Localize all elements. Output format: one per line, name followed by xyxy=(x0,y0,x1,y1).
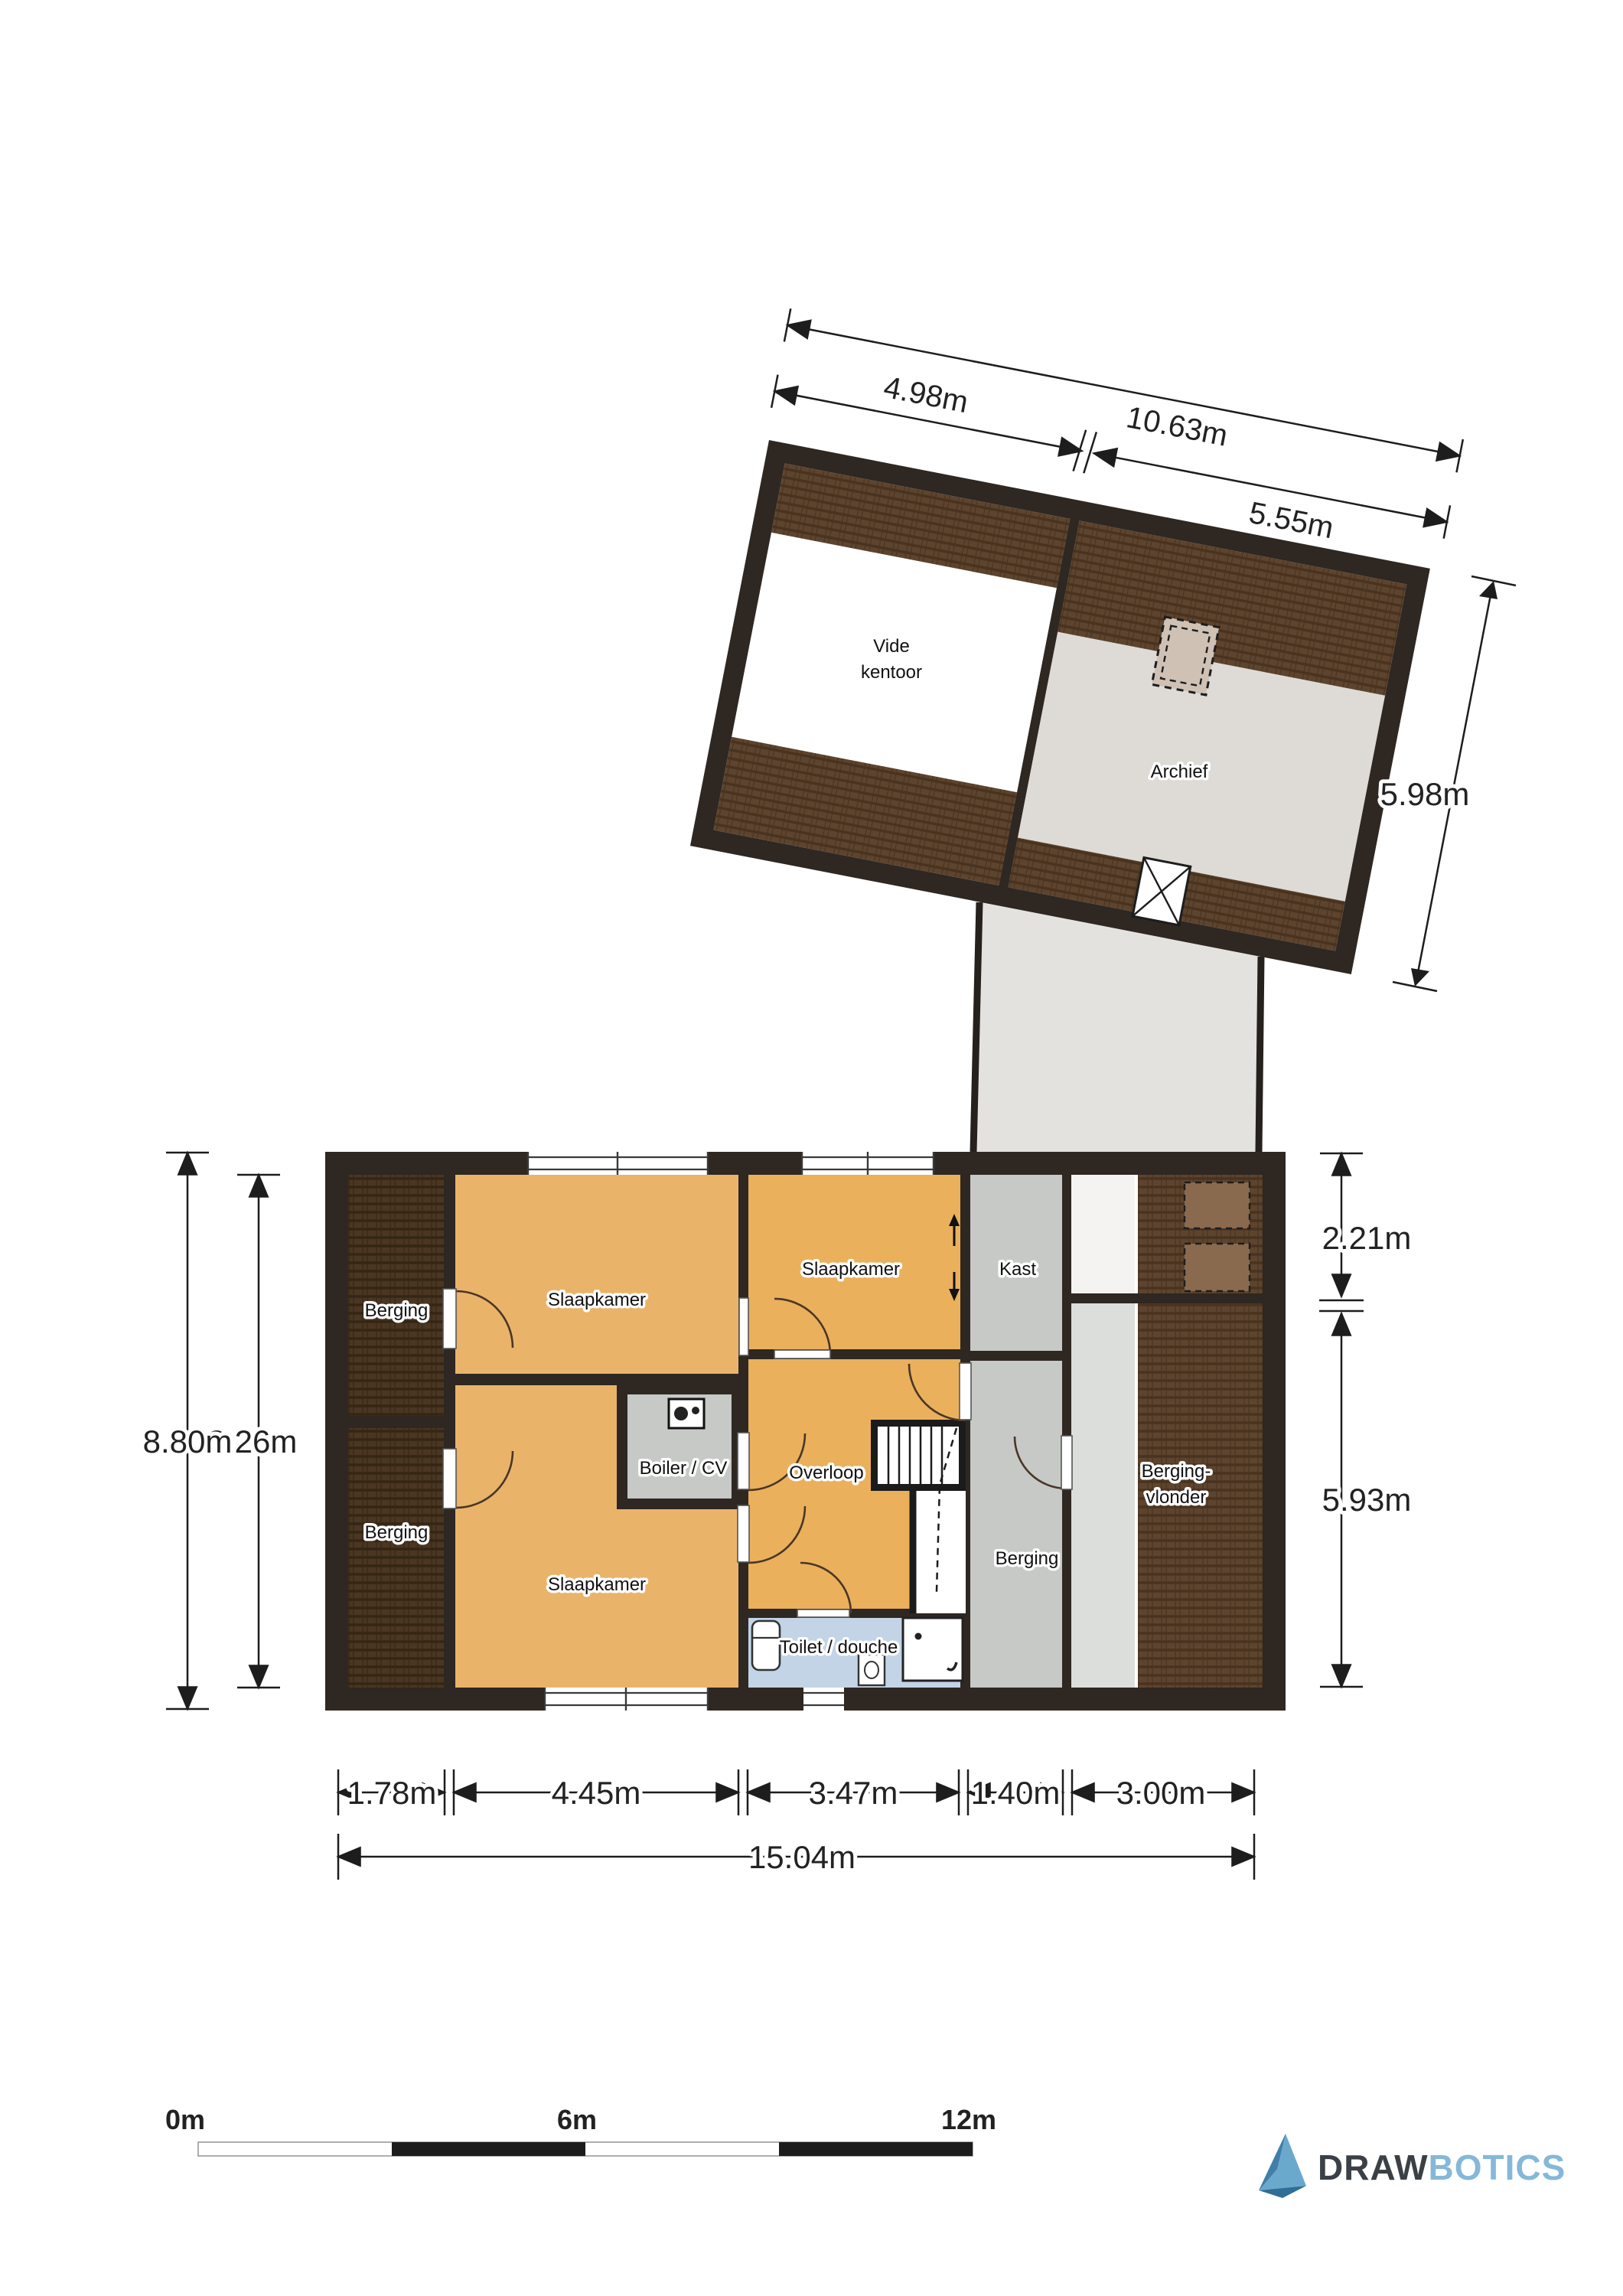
skylight-box xyxy=(1133,858,1191,925)
label-berging-vlonder-line1: Berging- xyxy=(1142,1461,1211,1482)
dim-w-berging: 1.78m xyxy=(347,1775,437,1811)
label-kast: Kast xyxy=(999,1259,1036,1280)
upper-unit: 10.63m 4.98m 5.55m xyxy=(686,308,1463,976)
label-berging-top-left: Berging xyxy=(365,1300,429,1321)
label-archief: Archief xyxy=(1151,762,1208,782)
dim-w-kast: 1.40m xyxy=(971,1775,1061,1811)
window-bottom-slaapkamer xyxy=(545,1688,708,1711)
window-top-slaapkamer xyxy=(528,1152,708,1175)
dim-upper-left-width: 4.98m xyxy=(881,370,971,419)
label-slaapkamer-bottom: Slaapkamer xyxy=(548,1574,646,1595)
sink-icon xyxy=(859,1655,885,1685)
floor-berging-strip xyxy=(1071,1303,1135,1688)
label-vide-line2: kentoor xyxy=(861,662,922,683)
scale-bar: 0m 6m 12m xyxy=(165,2104,996,2156)
label-overloop: Overloop xyxy=(789,1463,863,1483)
dim-w-slaapkamer: 4.45m xyxy=(552,1775,641,1811)
roof-hatch xyxy=(1152,617,1219,695)
logo-wordmark: DRAWBOTICS xyxy=(1318,2148,1566,2187)
label-berging-vlonder-line2: vlonder xyxy=(1146,1487,1207,1508)
window-toilet xyxy=(803,1688,844,1711)
label-berging-middle: Berging xyxy=(996,1548,1059,1569)
label-slaapkamer-top: Slaapkamer xyxy=(548,1290,646,1310)
label-vide-line1: Vide xyxy=(873,636,910,657)
floor-kast-column xyxy=(970,1175,1062,1688)
dim-total-width: 15.04m xyxy=(748,1839,855,1875)
lower-unit: Berging Berging Slaapkamer Slaapkamer Sl… xyxy=(325,1152,1286,1711)
floorplan-page: 10.63m 4.98m 5.55m Vide kentoor Archief … xyxy=(0,0,1623,2296)
dim-right-top: 2.21m xyxy=(1322,1220,1412,1256)
scale-label-12m: 12m xyxy=(941,2104,996,2135)
floor-berging-left xyxy=(348,1175,444,1688)
label-slaapkamer-middle: Slaapkamer xyxy=(802,1259,900,1280)
logo-word-botics: BOTICS xyxy=(1429,2148,1566,2187)
dim-height-outer: 8.80m xyxy=(143,1424,233,1459)
toilet-icon xyxy=(752,1621,780,1670)
window-top-middle xyxy=(802,1152,934,1175)
shower-icon xyxy=(903,1618,963,1681)
dim-upper-height: 5.98m xyxy=(1380,776,1470,812)
dim-right-bottom: 5.93m xyxy=(1322,1482,1412,1518)
dim-w-middle: 3.47m xyxy=(809,1775,898,1811)
room-boiler-cv xyxy=(617,1384,741,1509)
stairwell-void xyxy=(916,1491,966,1613)
floorplan-drawing: 10.63m 4.98m 5.55m Vide kentoor Archief … xyxy=(0,0,1623,2296)
scale-label-6m: 6m xyxy=(557,2104,597,2135)
logo: DRAWBOTICS xyxy=(1259,2134,1566,2198)
label-berging-bottom-left: Berging xyxy=(365,1522,429,1543)
label-boiler-cv: Boiler / CV xyxy=(640,1458,728,1479)
label-toilet-douche: Toilet / douche xyxy=(780,1637,898,1658)
scale-label-0m: 0m xyxy=(165,2104,205,2135)
dim-w-right: 3.00m xyxy=(1116,1775,1206,1811)
logo-word-draw: DRAW xyxy=(1318,2148,1429,2187)
